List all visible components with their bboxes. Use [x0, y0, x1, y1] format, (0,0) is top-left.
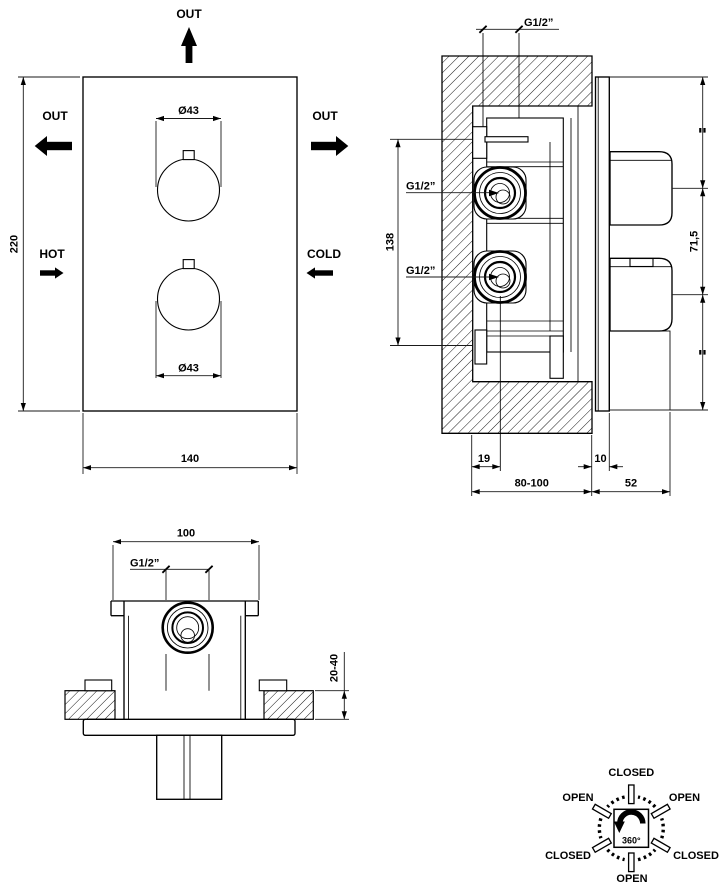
upper-knob-notch: [183, 151, 194, 160]
svg-text:100: 100: [177, 528, 195, 540]
dial-angle-label: 360°: [622, 836, 641, 846]
arrow-up-icon: [181, 27, 197, 63]
handle-upper-profile: [610, 152, 672, 225]
dial-label-upper-right: OPEN: [669, 792, 700, 804]
dim-plaster-depth: 20-40: [315, 652, 349, 719]
svg-text:52: 52: [625, 478, 637, 490]
equal-mark: [699, 128, 701, 133]
surface-tab-left: [85, 680, 112, 691]
lower-knob: [158, 268, 220, 330]
handle-shadow-outline: [609, 331, 670, 410]
cover-flange: [83, 719, 295, 735]
handle-lever-notch: [630, 259, 653, 267]
dim-outlet-topview: G1/2”: [130, 558, 213, 601]
arrow-right-icon: [311, 136, 348, 156]
svg-text:G1/2”: G1/2”: [406, 265, 435, 277]
svg-text:71,5: 71,5: [689, 231, 701, 252]
trim-plate-outline: [83, 77, 297, 411]
top-view: 100 G1/2”: [65, 528, 349, 800]
cold-label: COLD: [307, 247, 341, 261]
front-view: OUT OUT OUT HOT COLD: [9, 7, 349, 474]
cold-arrow-left-icon: [307, 267, 334, 278]
equal-mark: [699, 350, 701, 355]
svg-text:G1/2”: G1/2”: [524, 17, 553, 29]
handle-shaft: [157, 735, 222, 799]
dial-label-top: CLOSED: [608, 767, 654, 779]
dim-plate-height: 220: [9, 77, 81, 411]
dim-outlet-top: G1/2”: [476, 17, 559, 33]
arrow-left-icon: [35, 136, 72, 156]
mounting-foot-left: [475, 330, 487, 364]
technical-drawing-sheet: OUT OUT OUT HOT COLD: [0, 0, 727, 889]
trim-plate-side: [596, 77, 610, 411]
svg-text:220: 220: [9, 235, 21, 253]
tick-bottom: [629, 853, 634, 872]
svg-text:80-100: 80-100: [515, 478, 549, 490]
dim-handle-pitch: 71,5: [609, 77, 708, 410]
svg-text:G1/2”: G1/2”: [130, 558, 159, 570]
tick-top: [629, 785, 634, 804]
dial-label-lower-right: CLOSED: [673, 850, 719, 862]
svg-text:19: 19: [478, 453, 490, 465]
hot-label: HOT: [39, 247, 65, 261]
svg-text:Ø43: Ø43: [178, 105, 199, 117]
wall-slab-left-hatched: [65, 691, 115, 720]
dim-plate-width: 140: [83, 413, 297, 474]
section-view: G1/2” G1/2” G1/2” 138: [385, 17, 709, 496]
dim-rough-in-depth: 80-100: [472, 471, 592, 496]
svg-text:Ø43: Ø43: [178, 363, 199, 375]
top-port-flange: [485, 137, 528, 142]
lower-knob-notch: [183, 260, 194, 269]
wall-slab-right-hatched: [264, 691, 313, 720]
upper-knob: [158, 159, 220, 221]
svg-text:10: 10: [594, 453, 606, 465]
surface-tab-right: [259, 680, 286, 691]
outlet-port-topview: [163, 603, 213, 653]
rotation-diagram: 360° CLOSED OPEN OPEN CLOSED CLOSED OPEN: [545, 767, 719, 885]
dial-label-upper-left: OPEN: [562, 792, 593, 804]
handle-lower-profile: [609, 258, 672, 410]
out-right-label: OUT: [312, 109, 338, 123]
dial-label-lower-left: CLOSED: [545, 850, 591, 862]
drawing-canvas: OUT OUT OUT HOT COLD: [0, 0, 727, 889]
valve-body: [487, 118, 564, 352]
svg-text:140: 140: [181, 453, 199, 465]
svg-text:138: 138: [385, 233, 397, 251]
out-left-label: OUT: [42, 109, 68, 123]
out-top-label: OUT: [176, 7, 202, 21]
mounting-foot-right: [550, 336, 563, 378]
svg-text:20-40: 20-40: [329, 654, 341, 682]
dial-label-bottom: OPEN: [616, 873, 647, 885]
hot-arrow-right-icon: [40, 267, 64, 278]
svg-text:G1/2”: G1/2”: [406, 181, 435, 193]
